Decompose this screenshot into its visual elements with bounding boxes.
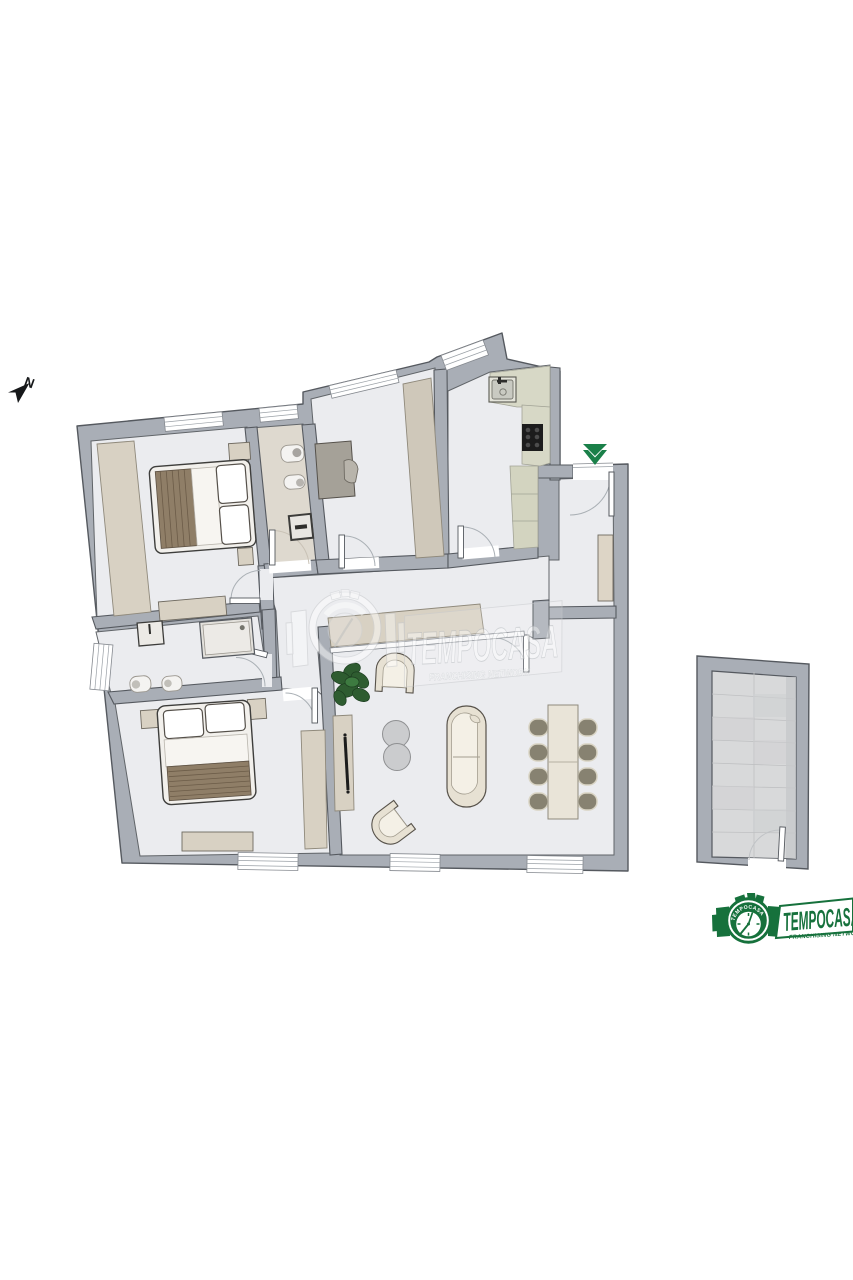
- svg-text:TEMPOCASA: TEMPOCASA: [405, 615, 560, 675]
